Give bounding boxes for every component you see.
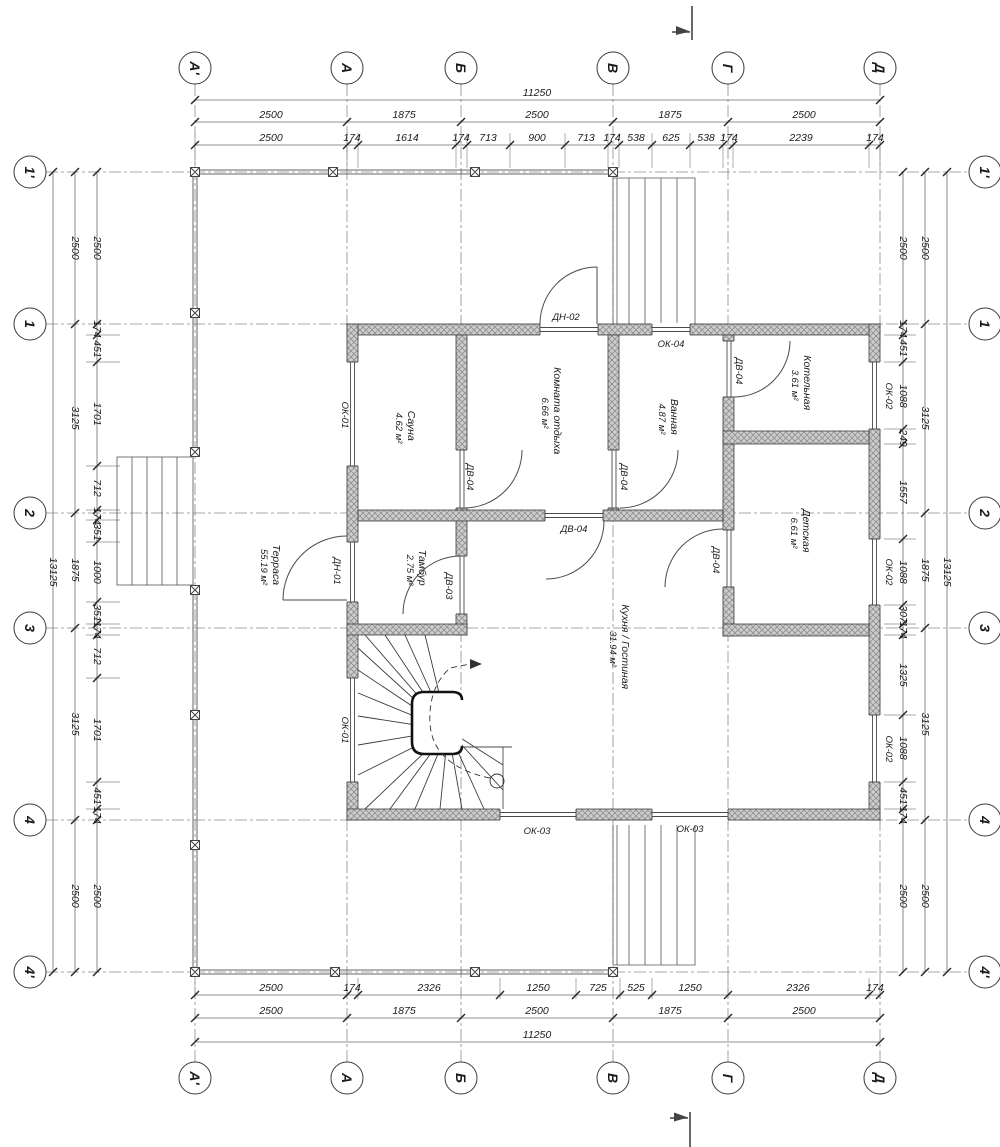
dimension-lines bbox=[49, 96, 951, 1046]
section-mark-bottom bbox=[670, 1112, 690, 1147]
dim-top-detail: 174 bbox=[603, 132, 621, 144]
dim-right-detail: 174 bbox=[897, 621, 909, 639]
dim-bottom-detail: 525 bbox=[627, 982, 645, 994]
window-ok02-top bbox=[868, 362, 881, 429]
dimension-text-top: 11250 2500 1875 2500 1875 2500 2500 174 … bbox=[258, 87, 884, 144]
dim-top-span: 1875 bbox=[392, 109, 416, 121]
dim-right-detail: 174 bbox=[897, 320, 909, 338]
label-window-ok04: ОК-04 bbox=[658, 339, 685, 350]
dim-bottom-span: 2500 bbox=[524, 1005, 549, 1017]
dim-right-detail: 174 bbox=[897, 806, 909, 824]
floor-plan-sheet: 11250 2500 1875 2500 1875 2500 2500 174 … bbox=[0, 0, 1000, 1147]
label-window-ok02-bottom: ОК-02 bbox=[883, 736, 894, 763]
window-ok03-left bbox=[500, 808, 576, 821]
axis-label-g-top: Г bbox=[720, 64, 736, 74]
dim-top-detail: 713 bbox=[577, 132, 595, 144]
door-dv04-kitchen bbox=[545, 509, 604, 579]
axis-label-3-left: 3 bbox=[22, 624, 38, 632]
room-label-sauna: Сауна 4.62 м² bbox=[393, 411, 421, 446]
window-ok03-right bbox=[652, 808, 728, 821]
dim-right-detail: 1088 bbox=[897, 560, 909, 584]
dim-right-span: 2500 bbox=[919, 235, 931, 260]
stair-newel bbox=[412, 692, 462, 754]
dim-top-detail: 174 bbox=[866, 132, 884, 144]
axis-label-1-prime-right: 1' bbox=[977, 166, 993, 178]
axis-label-a-bottom: А bbox=[339, 1072, 355, 1083]
axis-label-v-top: В bbox=[605, 63, 621, 73]
dim-top-detail: 625 bbox=[662, 132, 680, 144]
window-ok04 bbox=[652, 323, 690, 336]
dim-top-span: 2500 bbox=[791, 109, 816, 121]
dim-top-total: 11250 bbox=[523, 87, 552, 99]
dim-left-detail: 1701 bbox=[91, 402, 103, 425]
axis-label-4-prime-left: 4' bbox=[22, 965, 38, 978]
dim-left-span: 3125 bbox=[69, 712, 81, 736]
dim-top-detail: 900 bbox=[528, 132, 546, 144]
axis-label-2-left: 2 bbox=[22, 508, 38, 517]
dim-bottom-span: 2500 bbox=[258, 1005, 283, 1017]
terrace-railing bbox=[191, 168, 618, 977]
axis-label-2-right: 2 bbox=[977, 508, 993, 517]
label-door-dv04-vannaya: ДВ-04 bbox=[618, 463, 629, 491]
stair-walkline-start bbox=[490, 774, 504, 788]
room-label-kitchen-living: Кухня / Гостиная 31.94 м² bbox=[607, 604, 635, 693]
dim-top-span: 2500 bbox=[524, 109, 549, 121]
axis-label-b-top: Б bbox=[453, 63, 469, 73]
label-door-dv03: ДВ-03 bbox=[443, 572, 454, 600]
dim-right-detail: 1088 bbox=[897, 736, 909, 760]
room-label-detskaya: Детская 6.61 м² bbox=[788, 508, 816, 557]
dim-top-detail: 174 bbox=[720, 132, 738, 144]
dim-right-detail: 2500 bbox=[897, 235, 909, 260]
axis-label-1-left: 1 bbox=[22, 320, 38, 328]
label-door-dv04-sauna: ДВ-04 bbox=[464, 463, 475, 491]
dim-right-detail: 451 bbox=[897, 339, 909, 357]
axis-label-v-bottom: В bbox=[605, 1073, 621, 1083]
window-ok02-middle bbox=[868, 539, 881, 605]
dim-left-span: 3125 bbox=[69, 406, 81, 430]
dim-bottom-detail: 725 bbox=[589, 982, 607, 994]
dim-right-span: 1875 bbox=[919, 558, 931, 582]
axis-label-3-right: 3 bbox=[977, 624, 993, 632]
dim-top-detail: 1614 bbox=[395, 132, 419, 144]
dim-left-detail: 1000 bbox=[91, 560, 103, 584]
dim-left-total: 13125 bbox=[47, 557, 59, 586]
dim-bottom-detail: 1250 bbox=[678, 982, 702, 994]
dim-bottom-detail: 1250 bbox=[526, 982, 550, 994]
dim-left-detail: 451 bbox=[91, 787, 103, 805]
dim-right-detail: 1557 bbox=[897, 480, 909, 505]
railing-posts bbox=[191, 168, 618, 977]
dim-right-span: 2500 bbox=[919, 883, 931, 908]
label-window-ok01-upper: ОК-01 bbox=[339, 402, 350, 429]
label-window-ok02-middle: ОК-02 bbox=[883, 559, 894, 586]
axis-label-d-top: Д bbox=[872, 62, 888, 73]
dimension-text-bottom: 2500 174 2326 1250 725 525 1250 2326 174… bbox=[258, 982, 884, 1041]
grid-lines bbox=[46, 84, 969, 1062]
axis-label-1-prime-left: 1' bbox=[22, 166, 38, 178]
dim-left-detail: 174 bbox=[91, 320, 103, 338]
door-dn02 bbox=[540, 267, 598, 336]
axis-label-4-prime-right: 4' bbox=[977, 965, 993, 978]
dim-top-span: 2500 bbox=[258, 109, 283, 121]
label-window-ok03-left: ОК-03 bbox=[524, 826, 551, 837]
dim-right-detail: 1325 bbox=[897, 663, 909, 687]
dim-top-detail: 174 bbox=[343, 132, 361, 144]
room-label-tambur: Тамбур 2.75 м² bbox=[404, 550, 432, 590]
label-door-dv04-kitchen: ДВ-04 bbox=[560, 524, 588, 535]
dim-top-detail: 538 bbox=[627, 132, 645, 144]
dim-top-detail: 713 bbox=[479, 132, 497, 144]
dim-right-detail: 249 bbox=[897, 428, 909, 447]
room-label-terrasa: Терраса 55.19 м² bbox=[258, 545, 286, 590]
dim-left-detail: 2500 bbox=[91, 235, 103, 260]
stair-walkline-arrow bbox=[470, 659, 482, 669]
dim-bottom-detail: 2326 bbox=[416, 982, 441, 994]
label-door-dn01: ДН-01 bbox=[331, 556, 342, 584]
dim-left-span: 2500 bbox=[69, 883, 81, 908]
axis-label-a-prime-bottom: А' bbox=[187, 1070, 203, 1085]
dim-bottom-detail: 2326 bbox=[785, 982, 810, 994]
room-label-komnata-otdyha: Комната отдыха 6.66 м² bbox=[539, 367, 567, 459]
axis-label-d-bottom: Д bbox=[872, 1072, 888, 1083]
dim-bottom-total: 11250 bbox=[523, 1029, 552, 1041]
terrace-entry-steps bbox=[117, 457, 193, 585]
dim-right-detail: 1088 bbox=[897, 384, 909, 408]
dim-left-detail: 712 bbox=[91, 479, 103, 497]
axis-label-g-bottom: Г bbox=[720, 1074, 736, 1084]
dim-left-detail: 451 bbox=[91, 340, 103, 358]
dim-top-detail: 174 bbox=[452, 132, 470, 144]
axis-label-1-right: 1 bbox=[977, 320, 993, 328]
dim-left-detail: 351 bbox=[91, 604, 103, 622]
dim-bottom-detail: 174 bbox=[343, 982, 361, 994]
dim-right-span: 3125 bbox=[919, 406, 931, 430]
dim-bottom-span: 1875 bbox=[658, 1005, 682, 1017]
floor-plan-drawing: 11250 2500 1875 2500 1875 2500 2500 174 … bbox=[0, 0, 1000, 1147]
axis-label-4-right: 4 bbox=[977, 815, 993, 824]
axis-label-a-top: А bbox=[339, 62, 355, 73]
dim-top-span: 1875 bbox=[658, 109, 682, 121]
label-door-dn02: ДН-02 bbox=[551, 312, 580, 323]
dim-left-detail: 174 bbox=[91, 806, 103, 824]
dim-left-detail: 174 bbox=[91, 621, 103, 639]
door-dv04-vannaya bbox=[607, 450, 678, 508]
dim-top-detail: 2239 bbox=[788, 132, 813, 144]
dim-bottom-span: 2500 bbox=[791, 1005, 816, 1017]
label-window-ok01-lower: ОК-01 bbox=[339, 717, 350, 744]
staircase bbox=[358, 635, 512, 809]
dim-top-detail: 538 bbox=[697, 132, 715, 144]
dim-left-span: 2500 bbox=[69, 235, 81, 260]
door-dv04-detskaya bbox=[665, 529, 735, 587]
dim-right-detail: 451 bbox=[897, 787, 909, 805]
dim-bottom-detail: 2500 bbox=[258, 982, 283, 994]
dim-top-detail: 2500 bbox=[258, 132, 283, 144]
dim-bottom-span: 1875 bbox=[392, 1005, 416, 1017]
room-label-vannaya: Ванная 4.87 м² bbox=[656, 399, 684, 439]
dim-left-detail: 712 bbox=[91, 647, 103, 665]
axis-label-b-bottom: Б bbox=[453, 1073, 469, 1083]
door-dn01 bbox=[283, 536, 359, 602]
label-window-ok02-top: ОК-02 bbox=[883, 383, 894, 410]
dim-left-detail: 351 bbox=[91, 523, 103, 541]
porch-steps-top-right bbox=[613, 178, 695, 324]
dim-bottom-detail: 174 bbox=[866, 982, 884, 994]
room-label-kotelnaya: Котельная 3.61 м² bbox=[789, 355, 817, 414]
label-window-ok03-right: ОК-03 bbox=[677, 824, 704, 835]
axis-bubble-labels: А' А Б В Г Д А' А Б В Г Д 1' 1 2 3 4 4' … bbox=[22, 60, 993, 1085]
dim-left-detail: 2500 bbox=[91, 883, 103, 908]
dim-right-detail: 2500 bbox=[897, 883, 909, 908]
axis-label-a-prime-top: А' bbox=[187, 60, 203, 75]
label-door-dv04-detskaya: ДВ-04 bbox=[710, 546, 721, 574]
label-door-dv04-kotelnaya: ДВ-04 bbox=[733, 357, 744, 385]
dim-left-detail: 1701 bbox=[91, 718, 103, 741]
axis-label-4-left: 4 bbox=[22, 815, 38, 824]
window-ok02-bottom bbox=[868, 715, 881, 782]
door-dv04-kotelnaya bbox=[722, 341, 790, 397]
porch-steps-bottom-right bbox=[613, 825, 695, 965]
section-mark-top bbox=[672, 6, 692, 40]
dim-right-span: 3125 bbox=[919, 712, 931, 736]
dim-right-total: 13125 bbox=[941, 557, 953, 586]
dim-left-span: 1875 bbox=[69, 558, 81, 582]
